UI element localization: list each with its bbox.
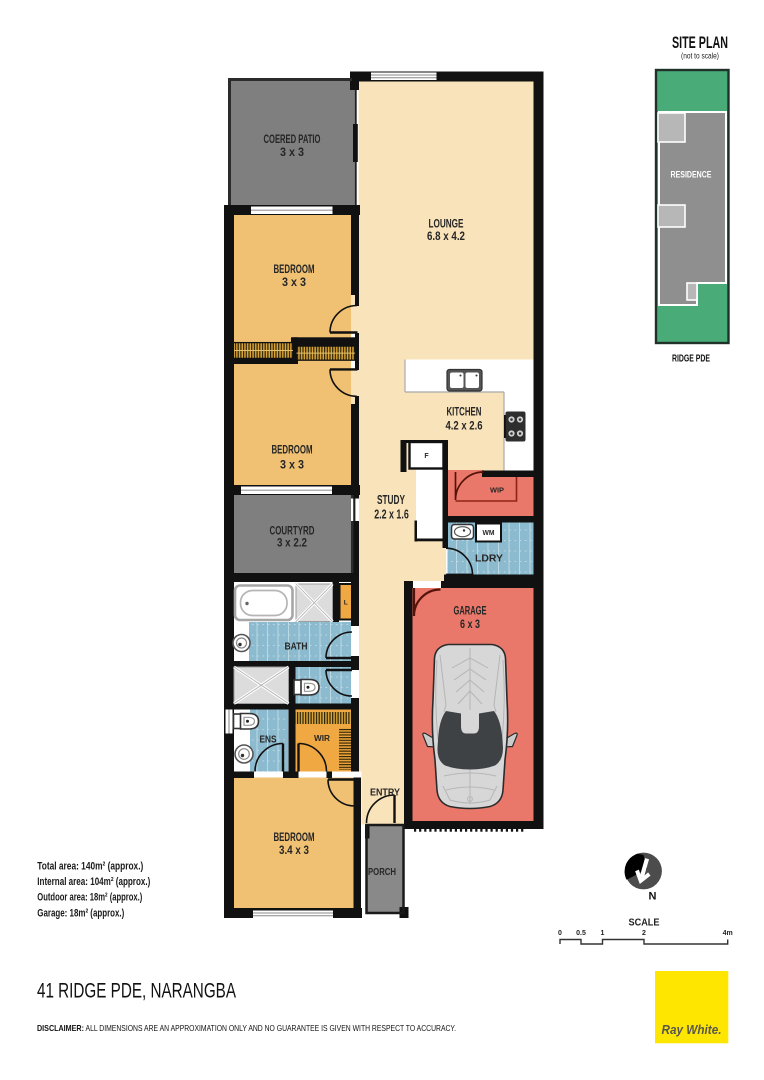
svg-text:BEDROOM: BEDROOM xyxy=(274,262,315,276)
svg-text:PORCH: PORCH xyxy=(368,867,396,878)
svg-text:6 x 3: 6 x 3 xyxy=(460,619,480,631)
svg-text:STUDY: STUDY xyxy=(377,493,405,507)
svg-text:BEDROOM: BEDROOM xyxy=(274,830,315,844)
svg-text:2.2 x 1.6: 2.2 x 1.6 xyxy=(374,508,409,522)
svg-text:6.8 x 4.2: 6.8 x 4.2 xyxy=(427,229,465,243)
svg-text:SCALE: SCALE xyxy=(629,917,660,929)
svg-text:Outdoor area: 18m² (approx.): Outdoor area: 18m² (approx.) xyxy=(37,892,142,904)
svg-text:KITCHEN: KITCHEN xyxy=(447,407,482,419)
svg-text:Internal area: 104m² (approx.): Internal area: 104m² (approx.) xyxy=(37,876,150,888)
svg-text:L: L xyxy=(344,600,348,607)
svg-text:WIR: WIR xyxy=(314,734,330,743)
svg-text:COURTYRD: COURTYRD xyxy=(270,526,315,538)
svg-text:2: 2 xyxy=(642,930,646,937)
svg-text:GARAGE: GARAGE xyxy=(454,606,487,618)
svg-text:4.2 x 2.6: 4.2 x 2.6 xyxy=(446,421,483,433)
svg-text:(not to scale): (not to scale) xyxy=(681,52,719,61)
svg-text:LDRY: LDRY xyxy=(475,553,503,565)
svg-text:COERED PATIO: COERED PATIO xyxy=(264,134,321,146)
svg-text:3 x 3: 3 x 3 xyxy=(280,147,304,159)
svg-text:3 x 3: 3 x 3 xyxy=(280,458,304,472)
svg-text:ENTRY: ENTRY xyxy=(370,787,400,799)
svg-text:RESIDENCE: RESIDENCE xyxy=(671,170,712,181)
svg-text:41 RIDGE PDE, NARANGBA: 41 RIDGE PDE, NARANGBA xyxy=(37,979,236,1003)
svg-text:DISCLAIMER: ALL DIMENSIONS ARE: DISCLAIMER: ALL DIMENSIONS ARE AN APPROX… xyxy=(37,1023,456,1033)
svg-text:F: F xyxy=(424,453,429,460)
svg-text:N: N xyxy=(649,891,657,903)
svg-text:1: 1 xyxy=(601,930,605,937)
svg-text:WIP: WIP xyxy=(490,486,504,495)
svg-text:0.5: 0.5 xyxy=(576,930,586,937)
svg-text:Garage: 18m² (approx.): Garage: 18m² (approx.) xyxy=(37,907,124,919)
svg-text:4m: 4m xyxy=(723,930,733,937)
svg-text:BEDROOM: BEDROOM xyxy=(272,443,313,457)
svg-text:3 x 2.2: 3 x 2.2 xyxy=(277,538,307,550)
svg-text:RIDGE PDE: RIDGE PDE xyxy=(672,354,710,365)
svg-text:WM: WM xyxy=(483,528,495,537)
svg-text:BATH: BATH xyxy=(285,641,308,653)
svg-text:0: 0 xyxy=(558,930,562,937)
svg-text:3 x 3: 3 x 3 xyxy=(282,275,306,289)
svg-text:3.4 x 3: 3.4 x 3 xyxy=(279,843,309,857)
svg-text:Ray White.: Ray White. xyxy=(662,1023,722,1037)
svg-text:Total area: 140m² (approx.): Total area: 140m² (approx.) xyxy=(37,860,143,872)
svg-text:ENS: ENS xyxy=(260,734,277,746)
svg-text:SITE PLAN: SITE PLAN xyxy=(672,34,728,52)
